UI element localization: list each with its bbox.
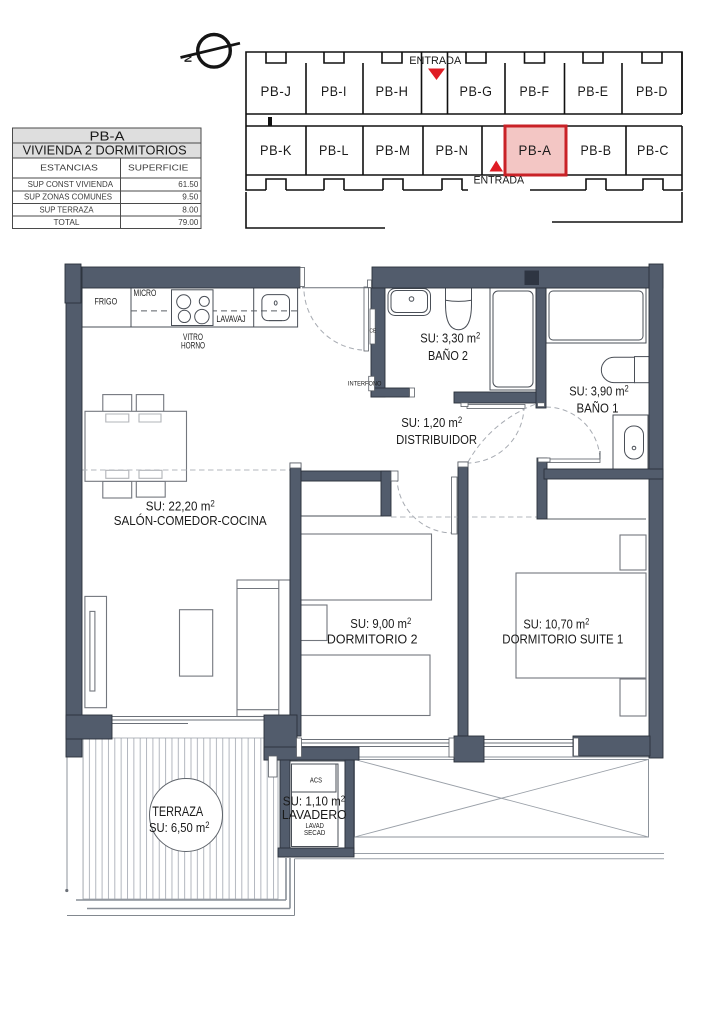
svg-text:PB-H: PB-H [376,83,409,99]
svg-text:PB-N: PB-N [436,142,469,158]
svg-text:SUP TERRAZA: SUP TERRAZA [40,204,94,214]
svg-text:SUP ZONAS COMUNES: SUP ZONAS COMUNES [24,192,112,202]
svg-text:DORMITORIO SUITE 1: DORMITORIO SUITE 1 [502,632,623,647]
svg-text:PB-E: PB-E [578,83,609,99]
svg-text:PB-B: PB-B [581,142,612,158]
svg-text:PB-D: PB-D [636,83,668,99]
svg-text:PB-C: PB-C [637,142,669,158]
svg-text:9.50: 9.50 [182,192,198,202]
svg-text:DISTRIBUIDOR: DISTRIBUIDOR [396,432,477,447]
svg-text:PB-I: PB-I [321,83,347,99]
svg-text:CE: CE [369,329,377,335]
svg-text:79.00: 79.00 [178,217,198,227]
svg-text:SU: 3,90 m2: SU: 3,90 m2 [569,384,629,399]
svg-text:SU: 6,50 m2: SU: 6,50 m2 [149,820,210,835]
svg-text:SUP CONST VIVIENDA: SUP CONST VIVIENDA [28,179,114,189]
svg-text:SU: 1,20 m2: SU: 1,20 m2 [401,415,462,430]
svg-text:ACS: ACS [310,776,322,785]
svg-text:PB-F: PB-F [520,83,550,99]
svg-text:ENTRADA: ENTRADA [409,55,461,67]
svg-text:SU: 10,70 m2: SU: 10,70 m2 [523,616,589,631]
svg-text:DORMITORIO 2: DORMITORIO 2 [327,632,418,647]
svg-text:TERRAZA: TERRAZA [152,804,204,819]
svg-text:ESTANCIAS: ESTANCIAS [40,163,98,173]
svg-text:PB-J: PB-J [261,83,292,99]
svg-text:SUPERFICIE: SUPERFICIE [128,163,189,173]
svg-text:PB-M: PB-M [376,142,411,158]
svg-text:61.50: 61.50 [178,179,198,189]
svg-text:TOTAL: TOTAL [54,217,80,227]
svg-text:BAÑO 1: BAÑO 1 [577,401,619,416]
svg-text:PB-L: PB-L [319,142,349,158]
svg-text:LAVADERO: LAVADERO [282,807,347,822]
svg-text:FRIGO: FRIGO [94,296,117,306]
svg-text:PB-A: PB-A [90,129,126,143]
svg-text:SU: 3,30 m2: SU: 3,30 m2 [420,331,480,346]
svg-text:PB-A: PB-A [519,142,552,158]
svg-text:N: N [182,55,194,63]
svg-text:MICRO: MICRO [134,288,157,298]
svg-text:BAÑO 2: BAÑO 2 [428,348,468,363]
svg-text:SECAD: SECAD [304,828,326,837]
svg-text:PB-G: PB-G [460,83,493,99]
svg-text:SALÓN-COMEDOR-COCINA: SALÓN-COMEDOR-COCINA [114,513,267,528]
svg-text:SU: 9,00 m2: SU: 9,00 m2 [350,616,411,631]
svg-text:LAVAVAJ: LAVAVAJ [216,314,245,324]
svg-text:8.00: 8.00 [182,204,198,214]
svg-text:SU: 22,20 m2: SU: 22,20 m2 [146,499,215,514]
svg-text:PB-K: PB-K [260,142,292,158]
svg-text:VIVIENDA 2 DORMITORIOS: VIVIENDA 2 DORMITORIOS [23,144,187,158]
svg-text:INTERFONO: INTERFONO [348,381,382,388]
svg-text:ENTRADA: ENTRADA [473,174,524,186]
svg-text:HORNO: HORNO [181,340,205,350]
